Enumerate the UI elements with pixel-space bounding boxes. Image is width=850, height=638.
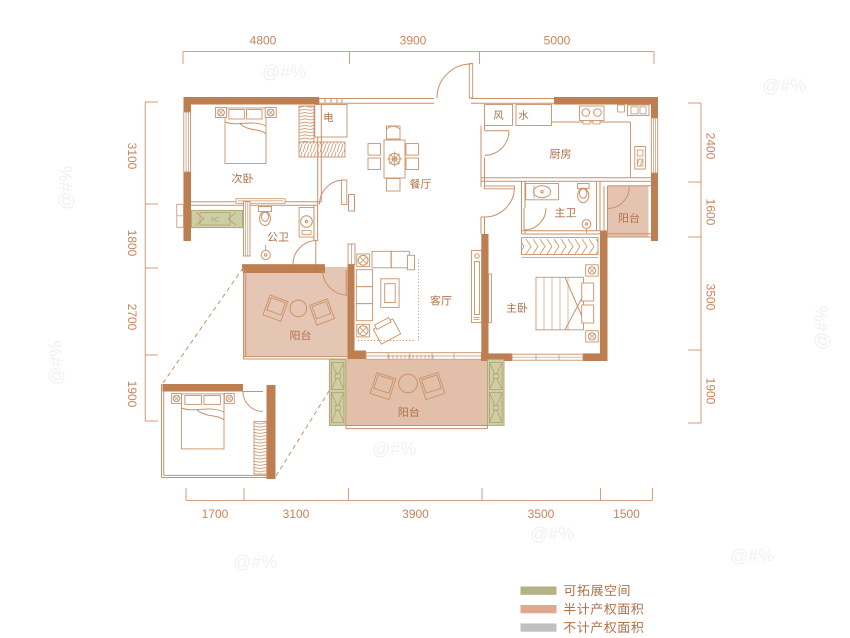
svg-text:1900: 1900 <box>125 381 139 408</box>
svg-text:3900: 3900 <box>400 34 427 48</box>
svg-text:2700: 2700 <box>125 304 139 331</box>
svg-text:@#%: @#% <box>56 166 76 210</box>
svg-text:4800: 4800 <box>250 34 277 48</box>
svg-text:1600: 1600 <box>704 199 718 226</box>
svg-text:AC: AC <box>210 217 219 224</box>
svg-text:@#%: @#% <box>530 524 574 544</box>
svg-text:@#%: @#% <box>372 439 416 459</box>
svg-text:@#%: @#% <box>233 552 277 572</box>
svg-text:1800: 1800 <box>125 230 139 257</box>
svg-text:1900: 1900 <box>704 378 718 405</box>
svg-text:3100: 3100 <box>125 143 139 170</box>
svg-text:1500: 1500 <box>613 507 640 521</box>
svg-text:3900: 3900 <box>402 507 429 521</box>
svg-text:@#%: @#% <box>762 76 806 96</box>
svg-text:3500: 3500 <box>704 284 718 311</box>
svg-text:@#%: @#% <box>46 341 66 385</box>
svg-text:5000: 5000 <box>544 34 571 48</box>
svg-text:1700: 1700 <box>202 507 229 521</box>
svg-text:2400: 2400 <box>704 133 718 160</box>
svg-text:@#%: @#% <box>730 546 774 566</box>
svg-text:@#%: @#% <box>262 62 306 82</box>
svg-text:3100: 3100 <box>283 507 310 521</box>
svg-text:@#%: @#% <box>812 306 832 350</box>
svg-text:3500: 3500 <box>528 507 555 521</box>
